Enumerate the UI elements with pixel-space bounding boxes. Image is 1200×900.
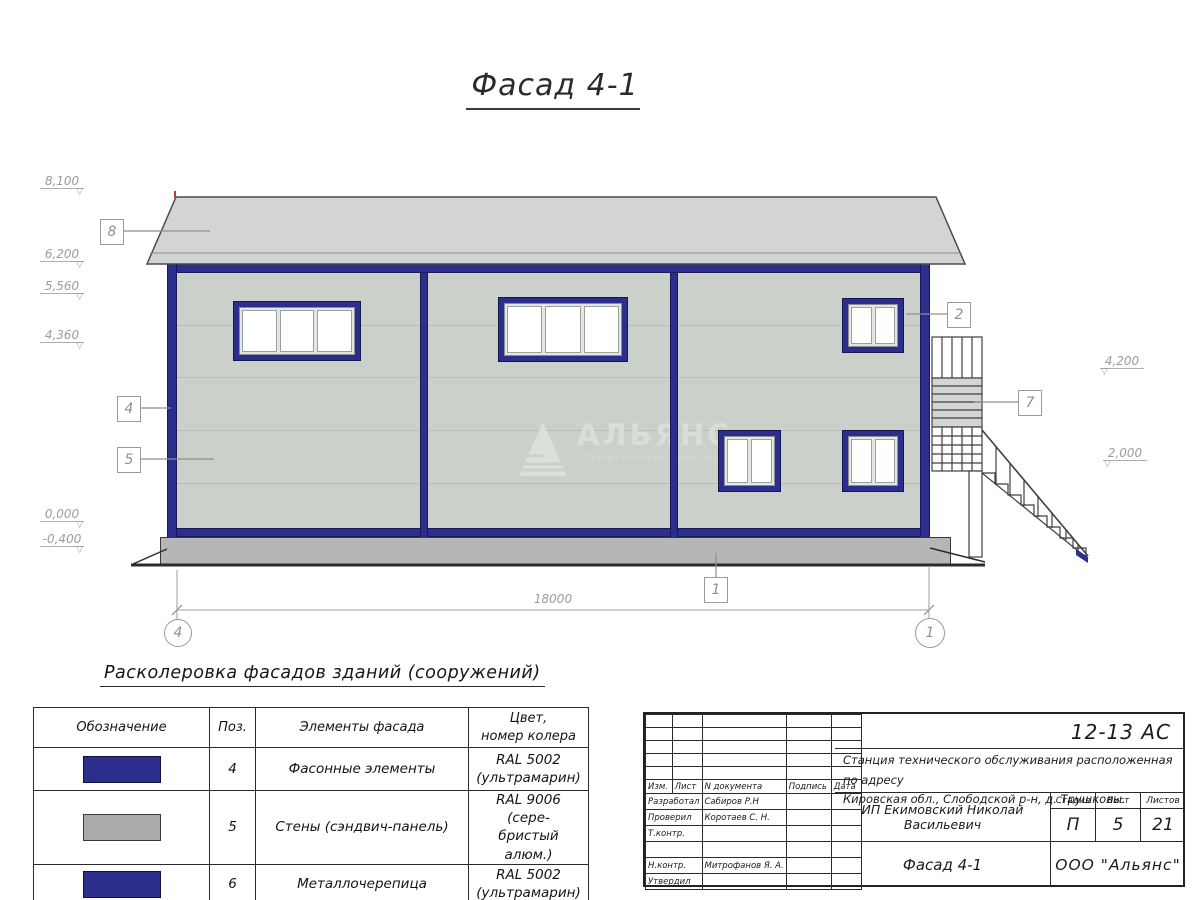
col-pos: Поз. xyxy=(210,708,256,748)
level-flag-icon: ▽ xyxy=(76,292,83,302)
level-flag-icon: ▽ xyxy=(76,520,83,530)
level-mark-4360: 4,360▽ xyxy=(40,328,84,343)
axis-number: 4 xyxy=(174,625,183,641)
sig-row-ncontrol: Н.контр. Митрофанов Я. А. xyxy=(646,858,862,874)
stage-grid: Стадия П Лист 5 Листов 21 xyxy=(1051,793,1185,841)
swatch-ultramarine xyxy=(83,756,161,783)
level-flag-icon: ▽ xyxy=(1104,459,1111,469)
element-value: Фасонные элементы xyxy=(256,748,469,791)
level-mark-6200: 6,200▽ xyxy=(40,247,84,262)
callout-leaders xyxy=(123,231,1018,577)
sig-row-empty xyxy=(646,842,862,858)
level-flag-icon: ▽ xyxy=(76,260,83,270)
stage-value: П xyxy=(1051,809,1095,841)
sheets-col: Листов 21 xyxy=(1140,793,1185,841)
color-value: RAL 5002(ультрамарин) xyxy=(469,748,589,791)
title-block: Изм. Лист N документа Подпись Дата Разра… xyxy=(643,712,1185,887)
level-flag-icon: ▽ xyxy=(76,545,83,555)
element-value: Металлочерепица xyxy=(256,864,469,900)
sig-row-tcontrol: Т.контр. xyxy=(646,826,862,842)
axis-marker-1: 1 xyxy=(915,618,945,648)
roof xyxy=(147,191,965,264)
color-value: RAL 9006 (сере-бристый алюм.) xyxy=(469,791,589,865)
ground-line xyxy=(131,548,985,565)
callout-7-stair: 7 xyxy=(1018,390,1042,416)
sheet-col: Лист 5 xyxy=(1095,793,1140,841)
sheet-label: Лист xyxy=(1096,793,1140,809)
level-mark-5560: 5,560▽ xyxy=(40,279,84,294)
pos-value: 5 xyxy=(210,791,256,865)
color-value: RAL 5002(ультрамарин) xyxy=(469,864,589,900)
callout-1-plinth: 1 xyxy=(704,577,728,603)
company-name: ООО "Альянс" xyxy=(1051,841,1185,887)
level-flag-icon: ▽ xyxy=(76,341,83,351)
table-row: 4 Фасонные элементы RAL 5002(ультрамарин… xyxy=(34,748,589,791)
color-table-header-row: Обозначение Поз. Элементы фасада Цвет,но… xyxy=(34,708,589,748)
dimension-value: 18000 xyxy=(513,592,593,606)
col-element: Элементы фасада xyxy=(256,708,469,748)
object-description: Станция технического обслуживания распол… xyxy=(835,749,1185,793)
object-line-1: Станция технического обслуживания распол… xyxy=(843,751,1185,790)
sig-row-approved: Утвердил xyxy=(646,874,862,890)
callout-4-corner: 4 xyxy=(117,396,141,422)
level-mark-minus0400: -0,400▽ xyxy=(40,532,84,547)
revision-header-row: Изм. Лист N документа Подпись Дата xyxy=(646,780,862,794)
swatch-ultramarine xyxy=(83,871,161,898)
level-mark-0000: 0,000▽ xyxy=(40,507,84,522)
title-block-signature-grid: Изм. Лист N документа Подпись Дата Разра… xyxy=(645,714,862,890)
element-value: Стены (сэндвич-панель) xyxy=(256,791,469,865)
color-table-title: Расколеровка фасадов зданий (сооружений) xyxy=(100,663,545,687)
col-color: Цвет,номер колера xyxy=(469,708,589,748)
callout-5-wall: 5 xyxy=(117,447,141,473)
sheets-value: 21 xyxy=(1141,809,1185,841)
stage-col: Стадия П xyxy=(1051,793,1095,841)
sig-row-checker: Проверил Коротаев С. Н. xyxy=(646,810,862,826)
sig-row-developer: Разработал Сабиров Р.Н xyxy=(646,794,862,810)
drawing-name: Фасад 4-1 xyxy=(835,841,1051,887)
sheets-label: Листов xyxy=(1141,793,1185,809)
document-code: 12-13 АС xyxy=(835,714,1185,749)
client-name: ИП Екимовский Николай Васильевич xyxy=(835,793,1051,841)
color-table: Обозначение Поз. Элементы фасада Цвет,но… xyxy=(33,707,589,900)
level-mark-2000: 2,000▽ xyxy=(1103,446,1147,461)
level-mark-4200: 4,200▽ xyxy=(1100,354,1144,369)
pos-value: 4 xyxy=(210,748,256,791)
table-row: 5 Стены (сэндвич-панель) RAL 9006 (сере-… xyxy=(34,791,589,865)
drawing-sheet: Фасад 4-1 АЛЬЯНС строительная компания xyxy=(0,0,1200,900)
swatch-silver xyxy=(83,814,161,841)
axis-number: 1 xyxy=(926,625,935,641)
exterior-stair xyxy=(932,337,1088,563)
table-row: 6 Металлочерепица RAL 5002(ультрамарин) xyxy=(34,864,589,900)
pos-value: 6 xyxy=(210,864,256,900)
callout-2-window: 2 xyxy=(947,302,971,328)
axis-marker-4: 4 xyxy=(164,619,192,647)
level-flag-icon: ▽ xyxy=(76,187,83,197)
level-flag-icon: ▽ xyxy=(1101,367,1108,377)
sheet-value: 5 xyxy=(1096,809,1140,841)
col-designation: Обозначение xyxy=(34,708,210,748)
stage-label: Стадия xyxy=(1051,793,1095,809)
level-mark-8100: 8,100▽ xyxy=(40,174,84,189)
callout-8-roof: 8 xyxy=(100,219,124,245)
